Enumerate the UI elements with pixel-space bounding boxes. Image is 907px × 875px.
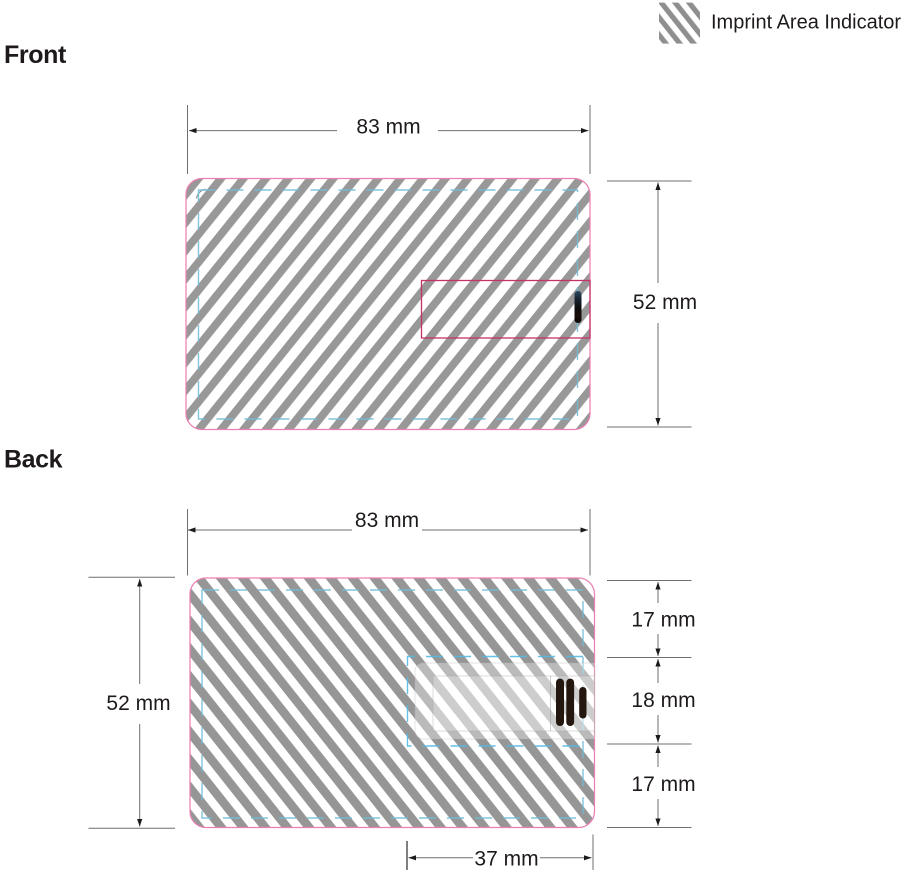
svg-text:Front: Front bbox=[4, 41, 67, 69]
svg-text:17 mm: 17 mm bbox=[631, 609, 695, 632]
svg-text:52 mm: 52 mm bbox=[106, 692, 170, 715]
svg-text:37 mm: 37 mm bbox=[474, 848, 538, 871]
svg-text:Imprint Area Indicator: Imprint Area Indicator bbox=[711, 12, 901, 34]
svg-text:18 mm: 18 mm bbox=[631, 689, 695, 712]
svg-text:Back: Back bbox=[4, 446, 63, 474]
svg-text:83 mm: 83 mm bbox=[355, 509, 419, 532]
svg-text:52 mm: 52 mm bbox=[633, 291, 697, 314]
svg-text:17 mm: 17 mm bbox=[631, 773, 695, 796]
svg-text:83 mm: 83 mm bbox=[356, 116, 420, 139]
